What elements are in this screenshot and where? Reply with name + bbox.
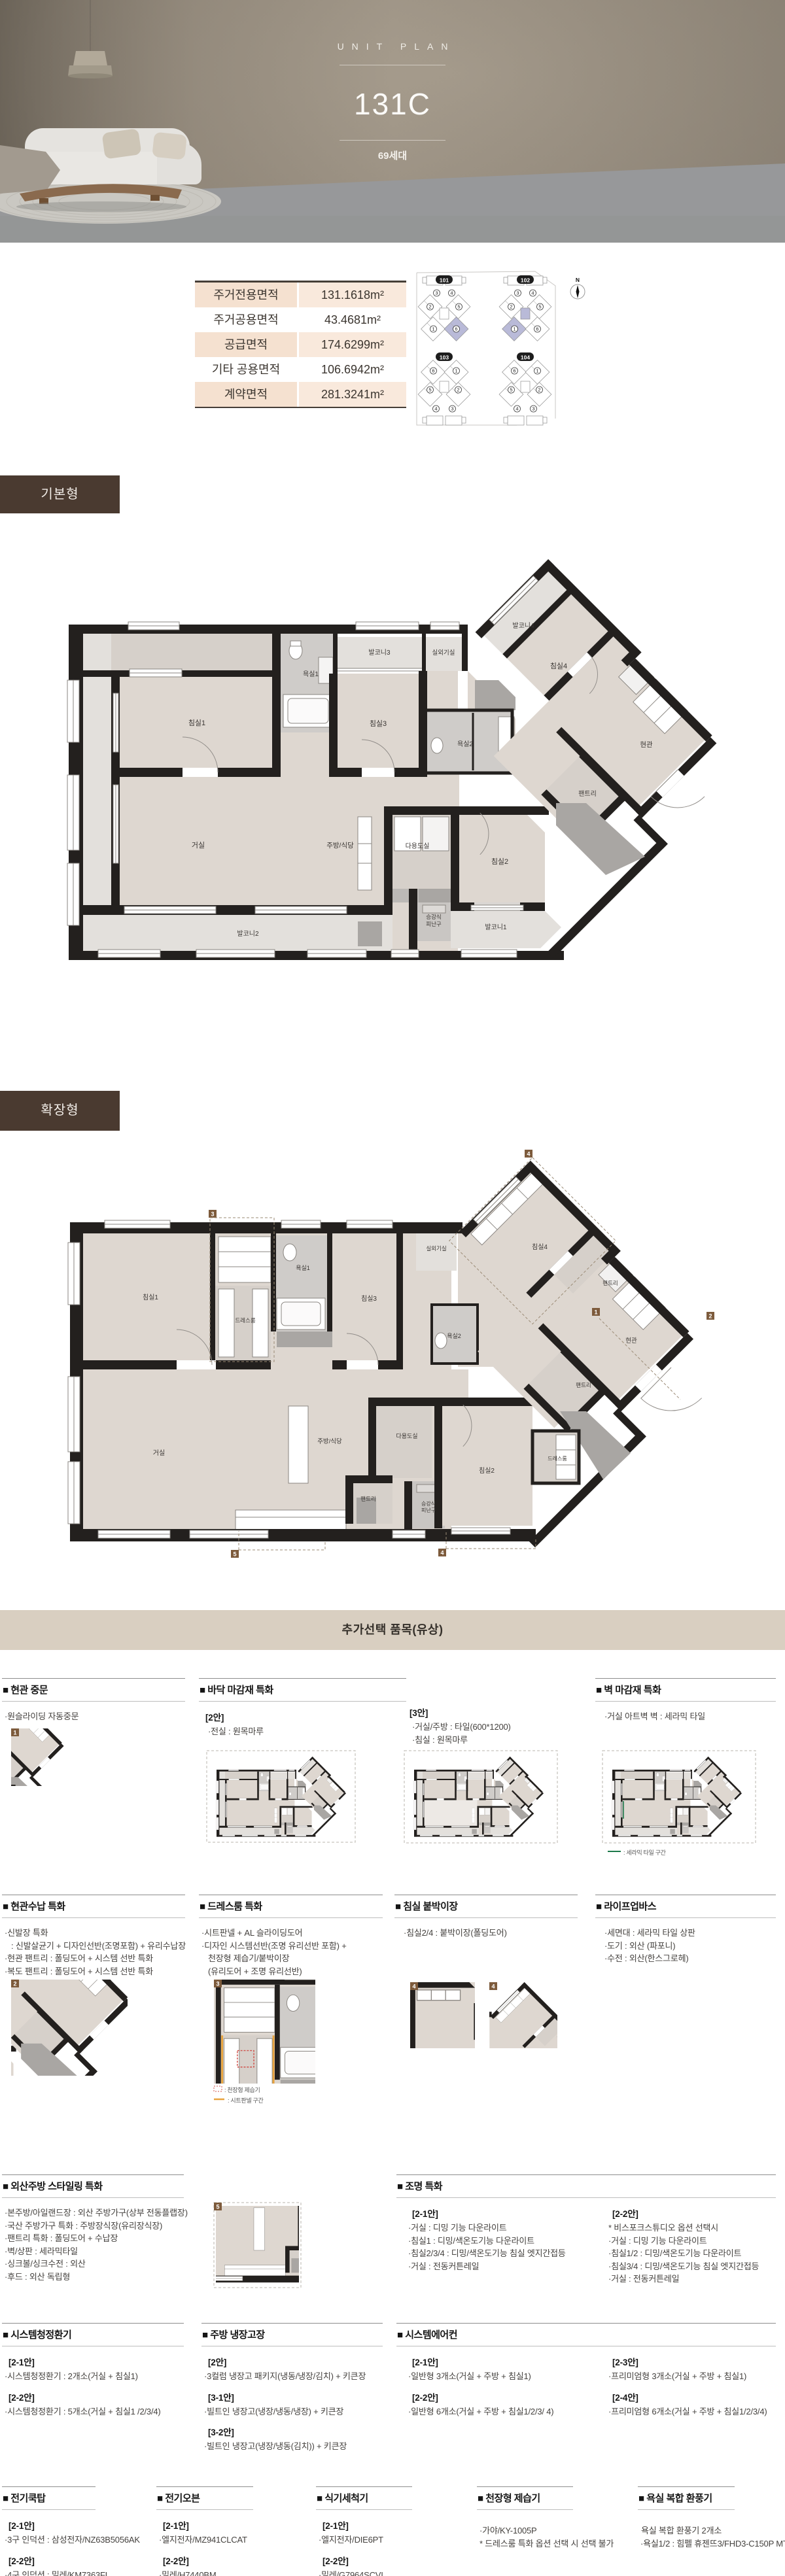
svg-text:2: 2 bbox=[457, 387, 459, 393]
svg-text:발코니2: 발코니2 bbox=[237, 930, 259, 938]
svg-text:침실1: 침실1 bbox=[143, 1294, 158, 1301]
svg-text:발코니4: 발코니4 bbox=[512, 622, 534, 630]
svg-text:실외기실: 실외기실 bbox=[432, 649, 455, 657]
svg-text:팬트리: 팬트리 bbox=[578, 790, 597, 798]
svg-text:거실: 거실 bbox=[192, 841, 205, 850]
svg-text:1: 1 bbox=[13, 1730, 16, 1736]
svg-text:2: 2 bbox=[428, 304, 431, 310]
svg-text:2: 2 bbox=[510, 304, 512, 310]
svg-text:침실1: 침실1 bbox=[188, 719, 205, 727]
svg-text:다용도실: 다용도실 bbox=[406, 842, 430, 850]
svg-text:6: 6 bbox=[513, 368, 515, 374]
svg-text:다용도실: 다용도실 bbox=[396, 1433, 417, 1439]
svg-text:침실2: 침실2 bbox=[479, 1467, 495, 1475]
svg-text:3: 3 bbox=[516, 290, 519, 296]
svg-text:2: 2 bbox=[708, 1313, 712, 1320]
svg-text:현관: 현관 bbox=[640, 741, 653, 749]
svg-text:4: 4 bbox=[434, 406, 437, 412]
svg-text:6: 6 bbox=[536, 326, 538, 332]
svg-text:드레스룸: 드레스룸 bbox=[548, 1456, 567, 1462]
svg-text:104: 104 bbox=[521, 354, 530, 361]
svg-text:발코니1: 발코니1 bbox=[485, 923, 507, 931]
svg-text:5: 5 bbox=[510, 387, 512, 393]
svg-text:욕실1: 욕실1 bbox=[303, 670, 319, 678]
svg-text:4: 4 bbox=[515, 406, 518, 412]
svg-text:102: 102 bbox=[521, 277, 530, 284]
svg-text:6: 6 bbox=[455, 326, 457, 332]
svg-text:1: 1 bbox=[536, 368, 538, 374]
svg-text:승강식: 승강식 bbox=[426, 914, 441, 920]
svg-text:발코니3: 발코니3 bbox=[368, 649, 391, 657]
svg-text:침실4: 침실4 bbox=[550, 662, 567, 670]
svg-text:103: 103 bbox=[440, 354, 449, 361]
svg-text:3: 3 bbox=[532, 406, 534, 412]
svg-text:4: 4 bbox=[527, 1151, 530, 1158]
svg-text:4: 4 bbox=[531, 290, 534, 296]
svg-text:4: 4 bbox=[491, 1984, 495, 1990]
svg-text:침실3: 침실3 bbox=[370, 719, 387, 728]
svg-text:욕실2: 욕실2 bbox=[457, 740, 473, 748]
svg-text:2: 2 bbox=[13, 1981, 16, 1987]
svg-text:거실: 거실 bbox=[153, 1449, 165, 1457]
svg-text:침실3: 침실3 bbox=[361, 1295, 377, 1303]
svg-text:4: 4 bbox=[450, 290, 453, 296]
svg-text:주방/식당: 주방/식당 bbox=[326, 842, 354, 850]
svg-text:피난구: 피난구 bbox=[421, 1507, 436, 1513]
svg-text:욕실2: 욕실2 bbox=[447, 1333, 461, 1339]
svg-text:1: 1 bbox=[594, 1309, 597, 1316]
svg-text:실외기실: 실외기실 bbox=[426, 1245, 446, 1252]
svg-text:4: 4 bbox=[440, 1550, 444, 1556]
svg-text:피난구: 피난구 bbox=[426, 921, 442, 927]
svg-text:5: 5 bbox=[428, 387, 431, 393]
svg-text:3: 3 bbox=[451, 406, 453, 412]
svg-text:3: 3 bbox=[435, 290, 438, 296]
svg-text:4: 4 bbox=[412, 1984, 415, 1990]
svg-text:침실2: 침실2 bbox=[491, 857, 508, 866]
svg-text:팬트리: 팬트리 bbox=[576, 1382, 591, 1388]
svg-text:5: 5 bbox=[457, 304, 460, 310]
svg-text:드레스룸: 드레스룸 bbox=[235, 1317, 255, 1324]
svg-text:주방/식당: 주방/식당 bbox=[317, 1438, 342, 1445]
svg-text:승강식: 승강식 bbox=[421, 1500, 436, 1507]
svg-text:5: 5 bbox=[216, 2204, 219, 2210]
svg-text:N: N bbox=[576, 277, 580, 283]
svg-text:침실4: 침실4 bbox=[532, 1243, 548, 1251]
svg-text:1: 1 bbox=[455, 368, 457, 374]
svg-text:5: 5 bbox=[538, 304, 541, 310]
svg-text:3: 3 bbox=[211, 1211, 214, 1218]
svg-text:1: 1 bbox=[432, 326, 434, 332]
svg-text:욕실1: 욕실1 bbox=[296, 1265, 310, 1271]
svg-text:101: 101 bbox=[440, 277, 449, 284]
svg-text:1: 1 bbox=[513, 326, 515, 332]
svg-text:3: 3 bbox=[216, 1981, 219, 1987]
svg-text:현관: 현관 bbox=[625, 1337, 637, 1345]
svg-text:팬트리: 팬트리 bbox=[360, 1496, 375, 1502]
svg-text:팬트리: 팬트리 bbox=[602, 1280, 618, 1286]
svg-text:2: 2 bbox=[538, 387, 540, 393]
svg-text:5: 5 bbox=[233, 1551, 236, 1558]
svg-text:6: 6 bbox=[432, 368, 434, 374]
